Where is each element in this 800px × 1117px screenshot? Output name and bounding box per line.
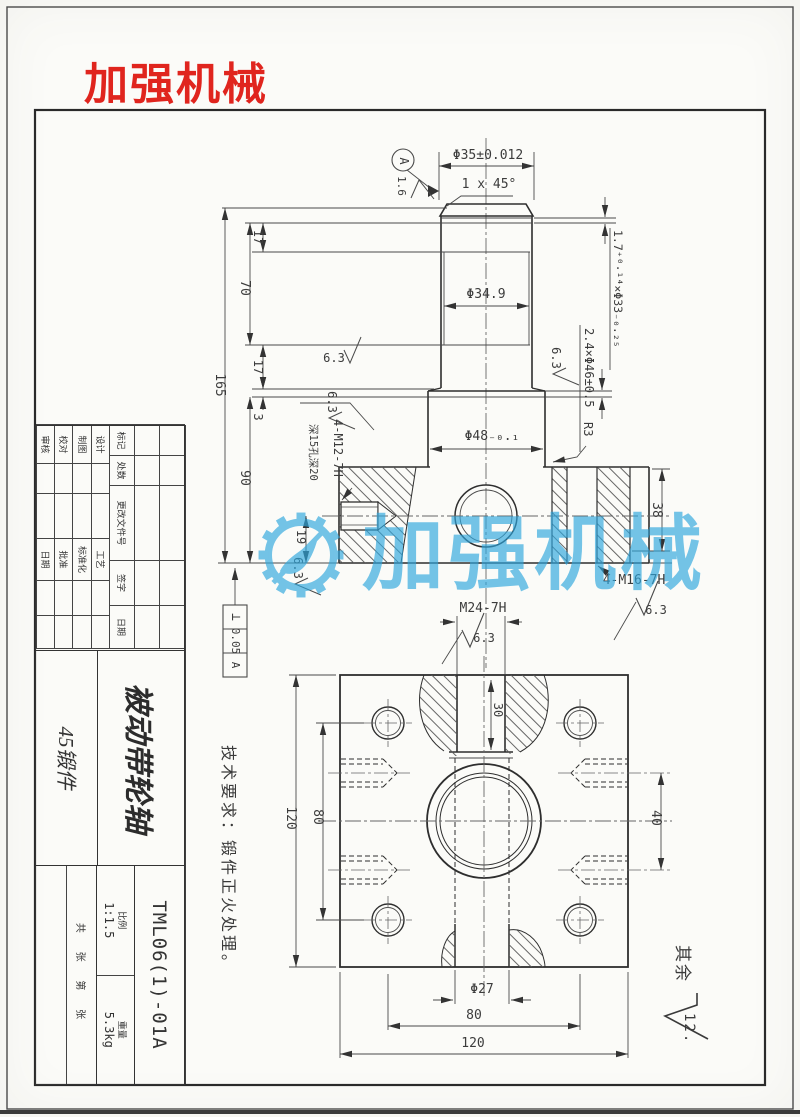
dim-3: 3: [251, 413, 265, 420]
label-m12: 4-M12-7H: [331, 419, 345, 477]
dim-dia48: Φ48₋₀.₁: [465, 429, 520, 444]
title-block-name-col: 被动带轮轴 45锻件: [36, 651, 184, 866]
sheets-info: 共 张 第 张: [66, 866, 96, 1084]
dim-17-mid: 17: [251, 360, 265, 374]
dim-80-bottom: 80: [466, 1008, 482, 1023]
dim-groove2: 2.4×Φ46±0.5: [582, 328, 596, 407]
sig-design: 设计: [91, 426, 109, 464]
scale-label: 比例: [116, 911, 129, 929]
rough-1-6: 1.6: [395, 176, 408, 196]
rest-roughness-value: 12.5: [681, 1013, 697, 1045]
material: 45锻件: [36, 651, 97, 865]
front-dimensions: [222, 149, 670, 677]
label-m24: M24-7H: [460, 601, 507, 616]
label-m12-depth: 深15孔深20: [307, 424, 320, 481]
rough-63-f: 6.3: [645, 603, 667, 617]
rough-63-d: 6.3: [549, 347, 563, 369]
label-r3: R3: [581, 422, 595, 436]
sig-standard: 标准化: [72, 539, 90, 581]
fcf-symbol: ⊥: [228, 613, 243, 621]
dim-dia35: Φ35±0.012: [453, 148, 523, 163]
rough-63-b: 6.3: [325, 391, 339, 413]
dim-80-left: 80: [310, 809, 325, 825]
dim-17-top: 17: [251, 230, 265, 244]
fcf-value: 0.05: [229, 628, 242, 655]
dim-165: 165: [212, 373, 227, 396]
sig-audit: 审核: [36, 426, 54, 464]
front-view: [218, 138, 672, 668]
bottom-dimensions: [289, 675, 661, 1058]
dim-120-bottom: 120: [461, 1036, 484, 1051]
rough-63-e: 6.3: [473, 631, 495, 645]
scale-value: 1:1.5: [102, 902, 116, 938]
sig-approve: 批准: [54, 539, 72, 581]
rev-h-mark: 标记: [109, 426, 134, 456]
drawing-number: TML06(1)-01A: [134, 866, 184, 1084]
rev-h-sign: 签字: [109, 561, 134, 606]
company-logo: 加强机械: [84, 48, 268, 112]
label-m16: 4-M16-7H: [603, 573, 666, 588]
weight-value: 5.3kg: [102, 1012, 116, 1048]
title-block-left: 标记 处数 更改文件号 签字 日期 设计 工艺 制图 标准化 校对 批准 审核 …: [36, 426, 184, 651]
part-name: 被动带轮轴: [97, 651, 184, 865]
dim-dia27: Φ27: [470, 982, 493, 997]
sig-draft: 制图: [72, 426, 90, 464]
rough-63-a: 6.3: [323, 351, 345, 365]
rev-h-date: 日期: [109, 606, 134, 649]
rough-63-c: 6.3: [291, 557, 305, 579]
dim-38: 38: [649, 502, 664, 518]
rev-h-count: 处数: [109, 456, 134, 486]
sig-process: 工艺: [91, 539, 109, 581]
revision-table: 标记 处数 更改文件号 签字 日期: [109, 426, 184, 650]
fcf-datum: A: [229, 662, 242, 669]
dim-19: 19: [294, 530, 308, 544]
rest-roughness: 其余 12.5: [655, 945, 715, 1075]
title-block-num-col: TML06(1)-01A 比例 1:1.5 重量 5.3kg 共 张 第 张: [36, 866, 184, 1084]
dim-chamfer: 1 x 45°: [462, 177, 517, 192]
sig-check: 校对: [54, 426, 72, 464]
roughness-check-icon: 12.5: [659, 989, 711, 1045]
rest-roughness-label: 其余: [673, 945, 698, 983]
rev-h-docno: 更改文件号: [109, 486, 134, 561]
dim-90: 90: [237, 470, 252, 486]
technical-requirements: 技术要求：锻件正火处理。: [212, 745, 242, 1015]
title-block: 标记 处数 更改文件号 签字 日期 设计 工艺 制图 标准化 校对 批准 审核 …: [35, 425, 185, 1085]
dim-120-left: 120: [283, 806, 298, 829]
datum-a-label: A: [397, 157, 411, 165]
drawing-sheet: Φ35±0.012 1 x 45° A 1.6 1.7⁺⁰·¹⁴×Φ33₋₀.₂…: [0, 0, 800, 1117]
dim-groove1: 1.7⁺⁰·¹⁴×Φ33₋₀.₂₅: [611, 230, 625, 348]
signature-table: 设计 工艺 制图 标准化 校对 批准 审核 日期: [34, 426, 109, 650]
sig-date: 日期: [36, 539, 54, 581]
dim-70: 70: [237, 280, 252, 296]
dim-40: 40: [648, 810, 663, 826]
dim-dia349: Φ34.9: [466, 287, 505, 302]
dim-30: 30: [491, 703, 505, 717]
weight-label: 重量: [116, 1021, 129, 1039]
dimension-labels: Φ35±0.012 1 x 45° A 1.6 1.7⁺⁰·¹⁴×Φ33₋₀.₂…: [212, 148, 667, 1051]
